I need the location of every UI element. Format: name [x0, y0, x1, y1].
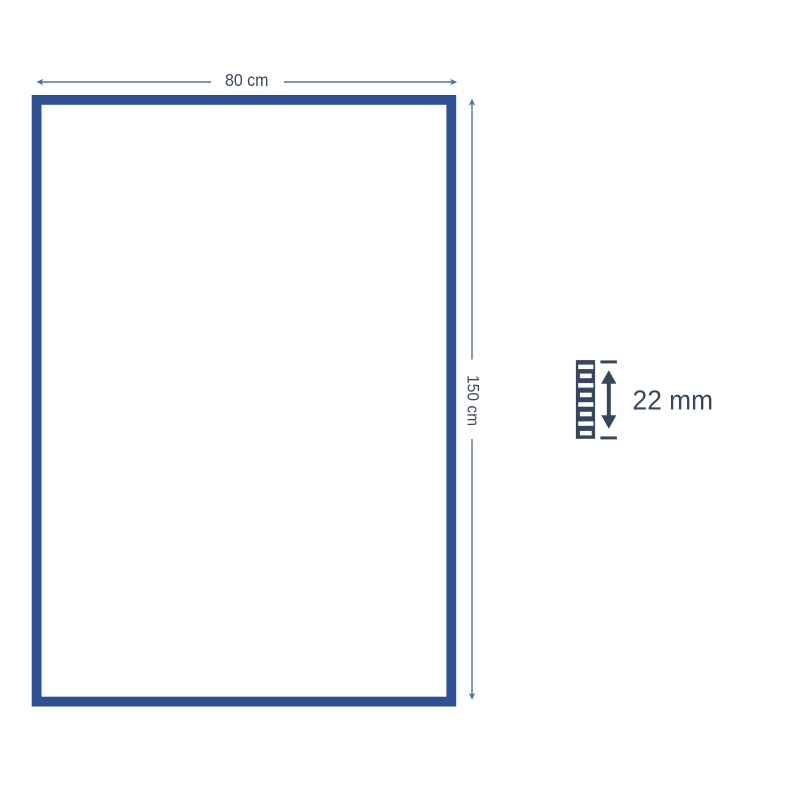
svg-text:22 mm: 22 mm	[633, 384, 714, 415]
svg-text:80 cm: 80 cm	[225, 70, 269, 90]
svg-text:150 cm: 150 cm	[463, 375, 482, 426]
